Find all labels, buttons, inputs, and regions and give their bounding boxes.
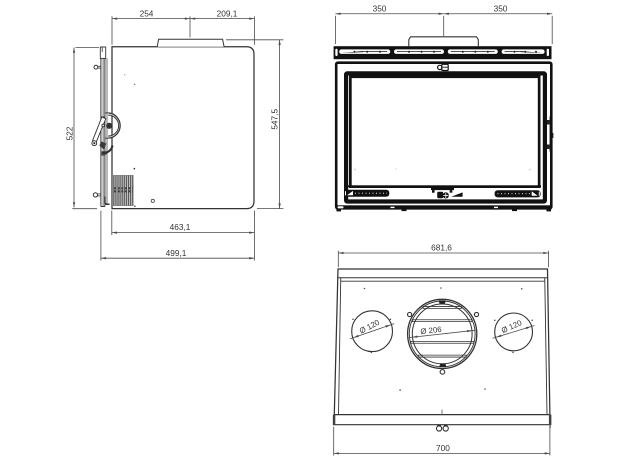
svg-text:463,1: 463,1 (170, 222, 191, 232)
svg-text:209,1: 209,1 (217, 8, 238, 18)
svg-text:350: 350 (373, 3, 387, 13)
svg-text:700: 700 (436, 443, 450, 453)
svg-text:681,6: 681,6 (431, 243, 452, 253)
svg-text:522: 522 (65, 126, 75, 140)
svg-text:350: 350 (494, 3, 508, 13)
svg-text:254: 254 (140, 8, 154, 18)
svg-text:547,5: 547,5 (269, 109, 279, 130)
svg-text:499,1: 499,1 (166, 248, 187, 258)
